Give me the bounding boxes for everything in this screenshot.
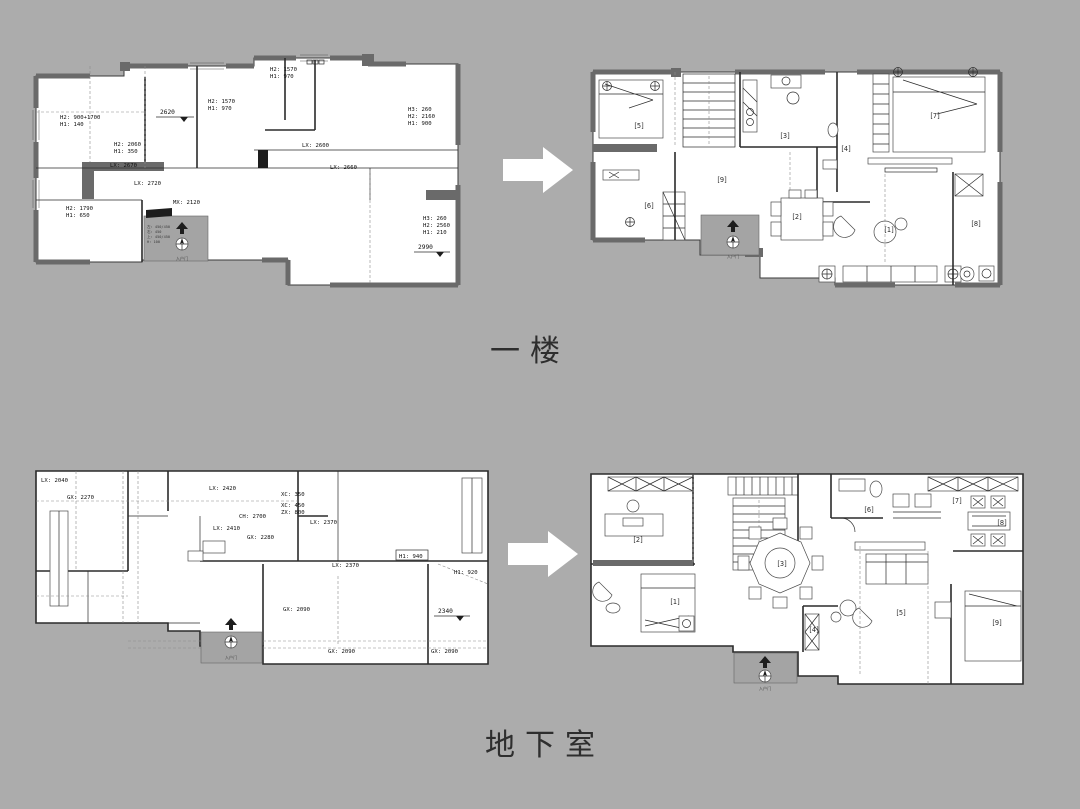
entrance-label: 入户门 [759,685,772,691]
washing-machine-icon [960,267,974,281]
dimension-label: LX: 2410 [213,526,240,532]
svg-text:H1: 940: H1: 940 [399,554,423,560]
entrance-label: 入户门 [225,654,238,661]
toilet-icon [828,123,838,137]
entrance-label: 入户门 [727,253,740,260]
compass-icon [727,236,739,248]
room-number-label: [4] [809,626,818,634]
section-title-basement: 地下室 [430,720,660,764]
bed [893,68,985,153]
svg-text:2990: 2990 [418,244,433,251]
dimension-label: H1: 900 [408,121,432,127]
room-number-label: [8] [971,220,980,228]
entry-note: 左: 450/450 [147,224,170,229]
entrance-area: 左: 450/450 右: 450 上: 450/450 H: 100 入户门 [144,208,208,262]
door-block [258,150,268,168]
console-table [855,542,925,550]
compass-icon [176,238,188,250]
dimension-label: CH: 2700 [239,514,266,520]
svg-text:2340: 2340 [438,608,453,615]
wall-protrusion [203,541,225,553]
dimension-label: GX: 2280 [247,535,274,541]
dimension-label: LX: 2040 [41,478,68,484]
room-number-label: [7] [952,497,961,505]
room-number-label: [1] [884,226,893,234]
dimension-label: H2: 2060 [114,142,141,148]
svg-text:2620: 2620 [160,109,175,116]
dimension-label: GX: 2090 [283,607,310,613]
transform-arrow-icon [508,530,580,582]
wall-block [82,171,94,199]
dimension-label: GX: 2090 [431,649,458,655]
wall-block [426,190,458,200]
entry-note: 上: 450/450 [147,234,170,239]
ottoman [606,603,620,613]
entrance-label: 入户门 [176,255,189,262]
transform-arrow-icon [503,146,575,198]
wall-block [120,62,130,71]
dimension-label: H2: 2560 [423,223,450,229]
dimension-label: LX: 2660 [330,165,357,171]
room-number-label: [9] [717,176,726,184]
room-number-label: [5] [634,122,643,130]
dimension-label: LX: 2420 [209,486,236,492]
wall-protrusion [188,551,203,561]
dimension-label: ZX: 800 [281,510,305,516]
dimension-label: H1: 920 [454,570,478,576]
dimension-label: H1: 970 [270,74,294,80]
room-number-label: [8] [997,519,1006,527]
sofa [843,266,937,282]
dimension-label: GX: 2090 [328,649,355,655]
wardrobe [873,74,889,152]
dimension-label: H1: 650 [66,213,90,219]
dimension-label: LX: 2720 [134,181,161,187]
room-number-label: [9] [992,619,1001,627]
room-number-label: [5] [896,609,905,617]
wall-block [593,560,693,566]
dimension-label: LX: 2670 [110,163,137,169]
dimension-label: H2: 1790 [66,206,93,212]
compass-icon [759,670,771,682]
dimension-label: LX: 2370 [310,520,337,526]
wall-block [593,144,657,152]
entry-note: H: 100 [147,240,160,244]
dimension-label: H3: 260 [408,107,432,113]
dimension-label: H2: 1570 [270,67,297,73]
wall-block [671,68,681,77]
dimension-label: H1: 140 [60,122,84,128]
sink-icon [839,479,865,491]
floorplan-basement-renovated: [1] [2] [3] [4] [5] [6] [7] [8] [9] 入户门 [583,456,1033,691]
entry-note: 右: 450 [147,229,161,234]
desk-chair [627,500,639,512]
dimension-label: H2: 1570 [208,99,235,105]
dimension-label: H1: 210 [423,230,447,236]
room-number-label: [1] [670,598,679,606]
room-number-label: [6] [644,202,653,210]
wall-block [362,54,374,66]
entrance-area: 入户门 [734,653,797,691]
room-number-label: [3] [780,132,789,140]
room-number-label: [2] [792,213,801,221]
dimension-label: H2: 900+1700 [60,115,100,121]
dimension-label: H1: 350 [114,149,138,155]
floorplan-first-floor-renovated: [1] [2] [3] [4] [5] [6] [7] [8] [9] 入户门 [585,52,1005,292]
dimension-label: LX: 2370 [332,563,359,569]
room-number-label: [6] [864,506,873,514]
dimension-label: LX: 2600 [302,143,329,149]
sink-icon [823,160,837,169]
nightstand [679,616,694,631]
room-number-label: [3] [777,560,786,568]
entrance-area: 入户门 [701,215,759,260]
room-number-label: [7] [930,112,939,120]
dimension-label: XC: 450 [281,503,305,509]
washing-machine-icon [979,266,994,281]
dimension-label: H3: 260 [423,216,447,222]
dimension-label: MX: 2120 [173,200,200,206]
floorplan-basement-original: LX: 2040 GX: 2270 LX: 2420 CH: 2700 LX: … [28,456,498,686]
dimension-label: GX: 2270 [67,495,94,501]
floorplan-first-floor-original: H2: 900+1700 H1: 140 H2: 2060 H1: 350 H2… [30,50,465,295]
room-number-label: [4] [841,145,850,153]
section-title-first-floor: 一楼 [440,326,620,370]
dimension-label: H1: 970 [208,106,232,112]
dresser [603,170,639,180]
toilet-icon [870,481,882,497]
dimension-label: H2: 2160 [408,114,435,120]
compass-icon [225,636,237,648]
sofa [866,554,928,584]
page-background: { "page": { "background": "#acacac" }, "… [0,0,1080,809]
dimension-label: XC: 350 [281,492,305,498]
bed [599,80,663,138]
stool [935,602,951,618]
floor-outline [36,58,458,285]
room-number-label: [2] [633,536,642,544]
